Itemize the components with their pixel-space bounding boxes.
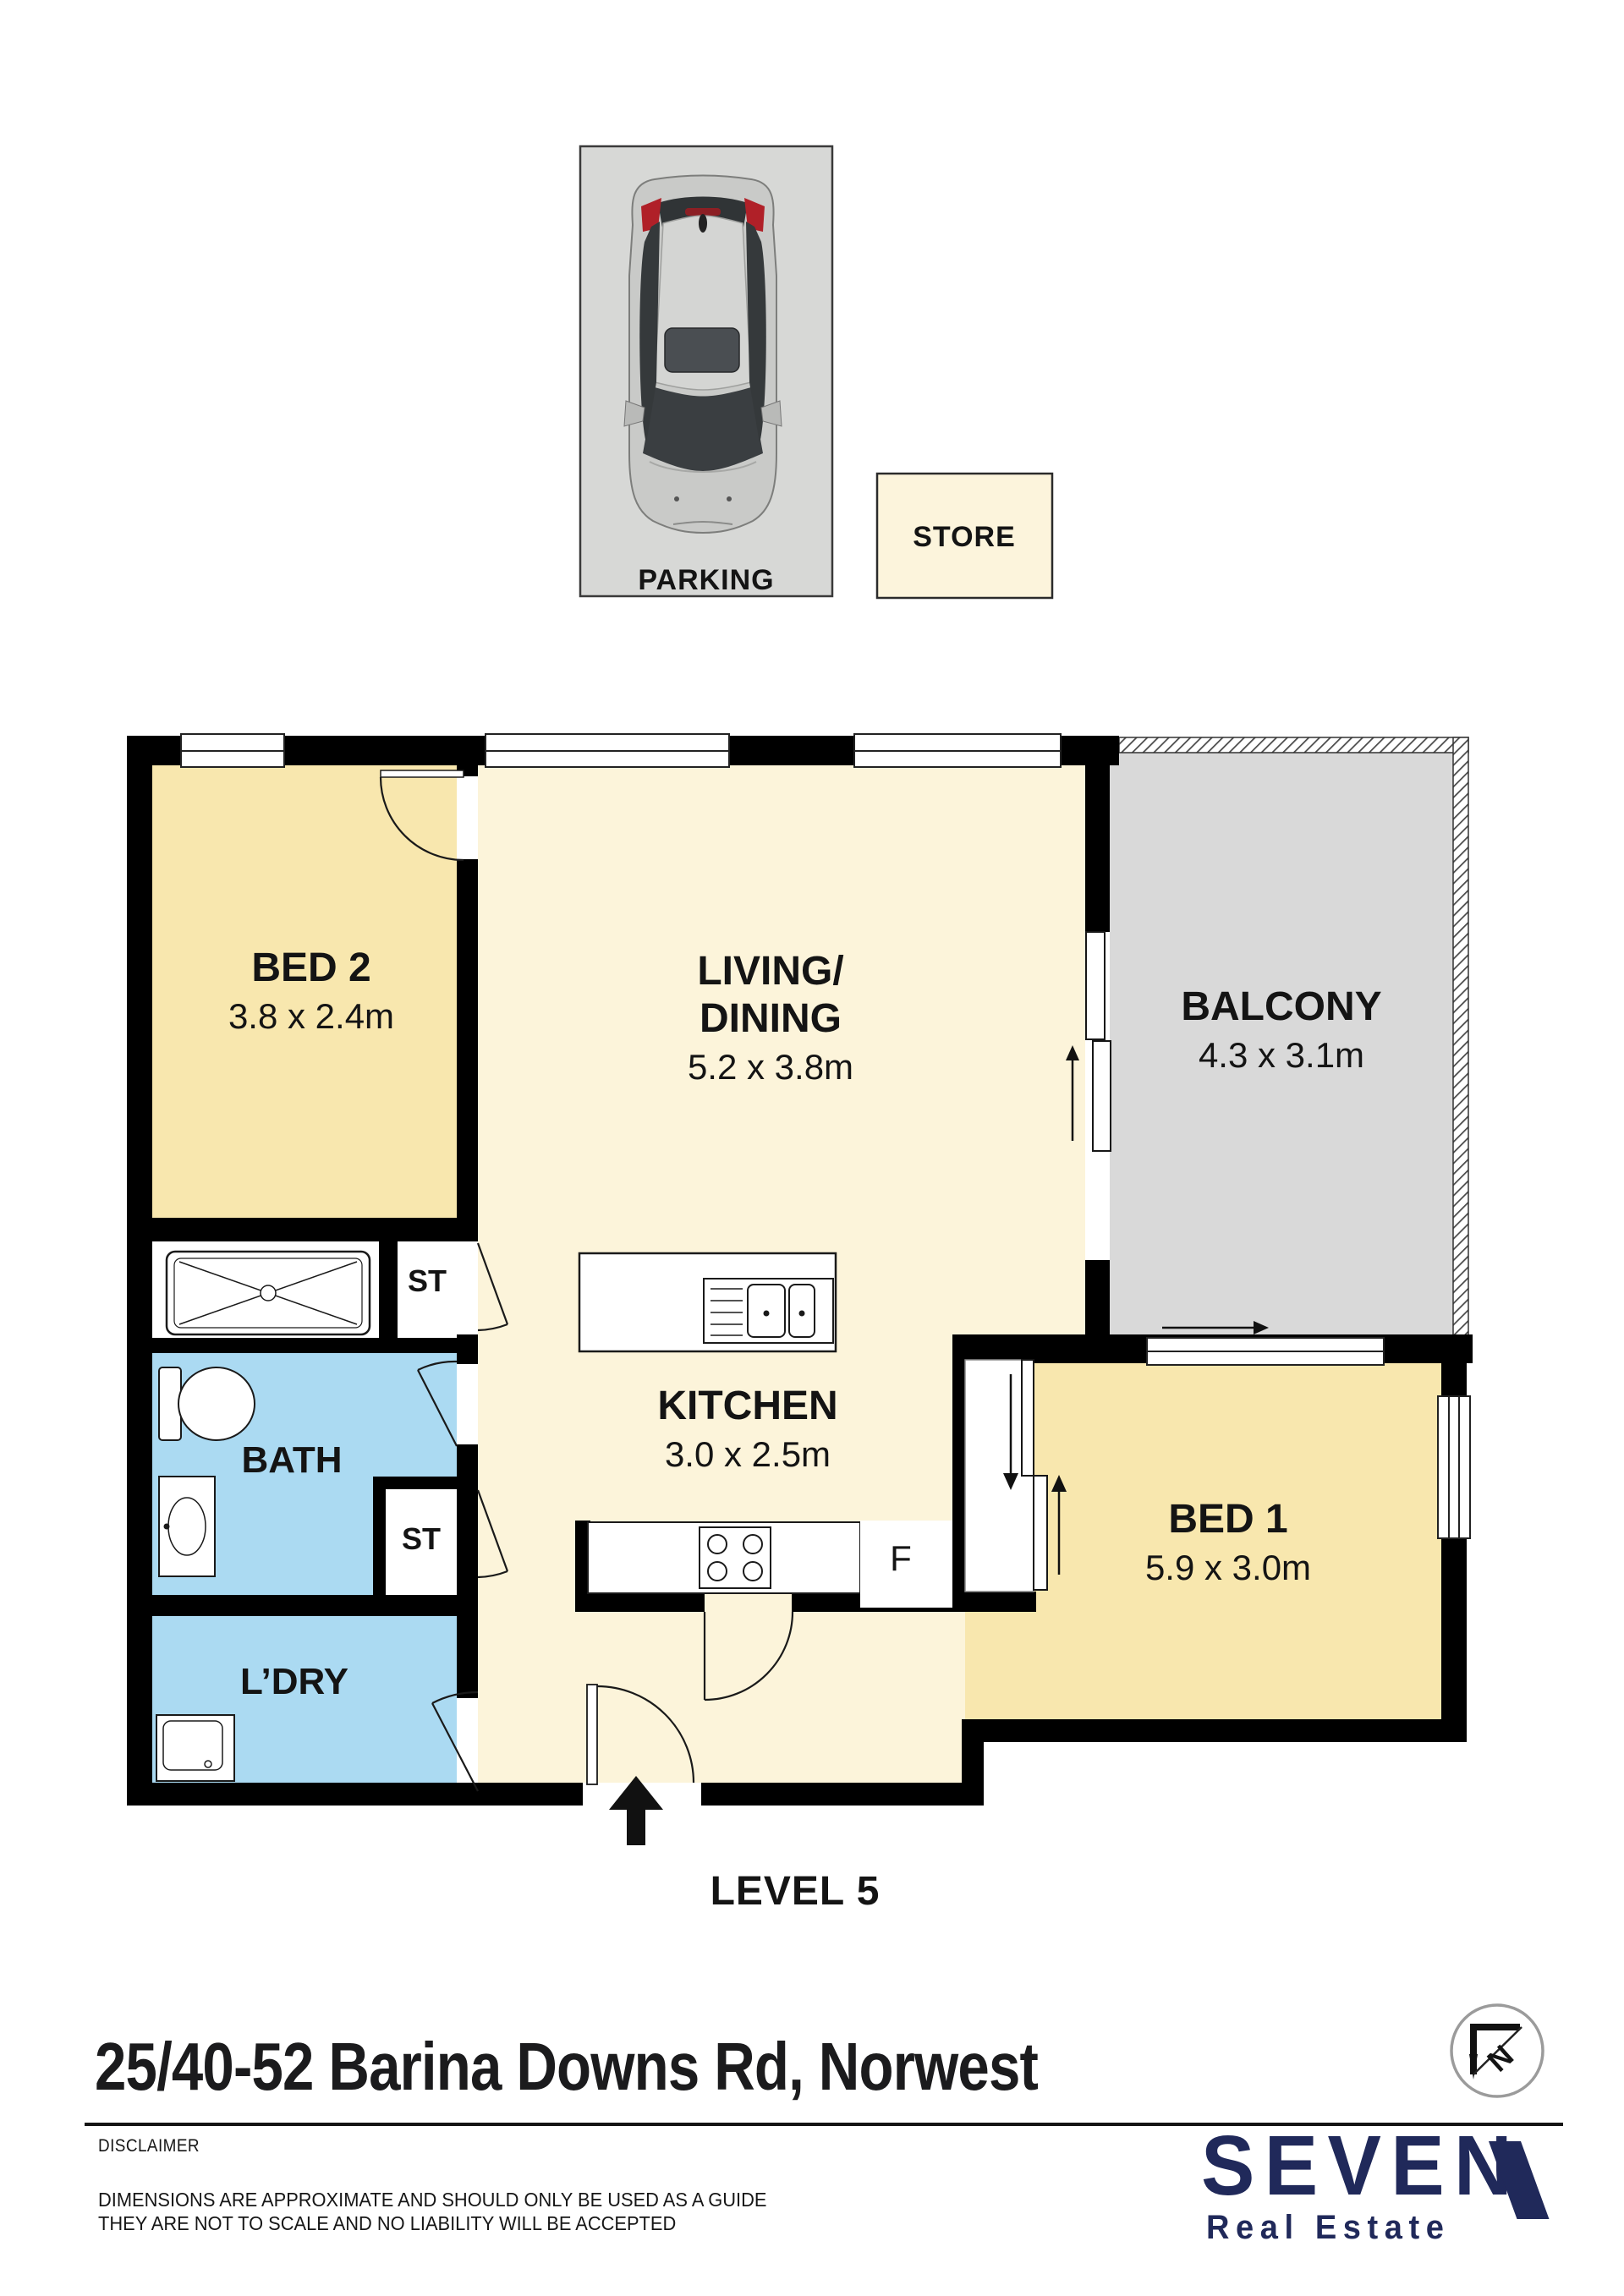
agency-logo: SEVEN Real Estate bbox=[1201, 2128, 1556, 2204]
entry-arrow bbox=[609, 1776, 663, 1845]
store-label: STORE bbox=[913, 521, 1016, 553]
car-sunroof bbox=[665, 328, 739, 372]
living-name-1: LIVING/ bbox=[697, 949, 843, 994]
agency-logo-subtitle: Real Estate bbox=[1206, 2209, 1450, 2247]
parking-label: PARKING bbox=[638, 564, 774, 596]
window-bed2 bbox=[181, 734, 284, 767]
kitchen-dims: 3.0 x 2.5m bbox=[665, 1434, 831, 1474]
st-upper-label: ST bbox=[408, 1263, 447, 1298]
disclaimer-line-2: THEY ARE NOT TO SCALE AND NO LIABILITY W… bbox=[98, 2212, 676, 2235]
bed2-name: BED 2 bbox=[251, 945, 370, 990]
window-bed1-top bbox=[1147, 1338, 1384, 1365]
fridge-label: F bbox=[890, 1538, 912, 1578]
store-box: STORE bbox=[877, 474, 1052, 598]
st-lower-label: ST bbox=[402, 1521, 441, 1556]
disclaimer-line-1: DIMENSIONS ARE APPROXIMATE AND SHOULD ON… bbox=[98, 2189, 766, 2211]
floorplan-drawing: PARKING STORE bbox=[0, 0, 1624, 2296]
bath-name: BATH bbox=[242, 1439, 343, 1481]
laundry-tub bbox=[156, 1715, 234, 1781]
bed1-slider-panel-2 bbox=[1034, 1476, 1047, 1590]
agency-logo-name: SEVEN bbox=[1201, 2128, 1539, 2204]
north-compass-icon: N bbox=[1451, 2005, 1543, 2096]
balcony-name: BALCONY bbox=[1181, 984, 1381, 1029]
toilet bbox=[159, 1367, 255, 1440]
balcony-dims: 4.3 x 3.1m bbox=[1199, 1035, 1364, 1075]
laundry-name: L’DRY bbox=[240, 1661, 348, 1702]
living-name-2: DINING bbox=[700, 996, 842, 1041]
living-dims: 5.2 x 3.8m bbox=[688, 1047, 853, 1087]
window-living-1 bbox=[486, 734, 729, 767]
balcony-slider-panel-1 bbox=[1086, 932, 1105, 1039]
property-address: 25/40-52 Barina Downs Rd, Norwest bbox=[95, 2028, 1038, 2106]
disclaimer-title: DISCLAIMER bbox=[98, 2136, 200, 2156]
vanity-basin bbox=[159, 1477, 215, 1576]
window-living-2 bbox=[854, 734, 1061, 767]
bed2-dims: 3.8 x 2.4m bbox=[228, 996, 394, 1036]
window-bed1-side bbox=[1438, 1396, 1470, 1538]
cooktop bbox=[700, 1527, 771, 1588]
bed1-name: BED 1 bbox=[1168, 1497, 1287, 1542]
shower-tray bbox=[167, 1252, 370, 1334]
floorplan-page: PARKING STORE bbox=[0, 0, 1624, 2296]
balcony-slider-panel-2 bbox=[1093, 1041, 1111, 1151]
kitchen-name: KITCHEN bbox=[657, 1384, 837, 1428]
car-antenna bbox=[699, 214, 707, 233]
bed2-floor bbox=[152, 764, 457, 1218]
car-top-view bbox=[624, 176, 782, 534]
bed1-dims: 5.9 x 3.0m bbox=[1145, 1548, 1311, 1587]
level-label: LEVEL 5 bbox=[710, 1869, 881, 1914]
car-windshield bbox=[643, 387, 763, 471]
bed1-slider-panel-1 bbox=[1022, 1360, 1034, 1476]
